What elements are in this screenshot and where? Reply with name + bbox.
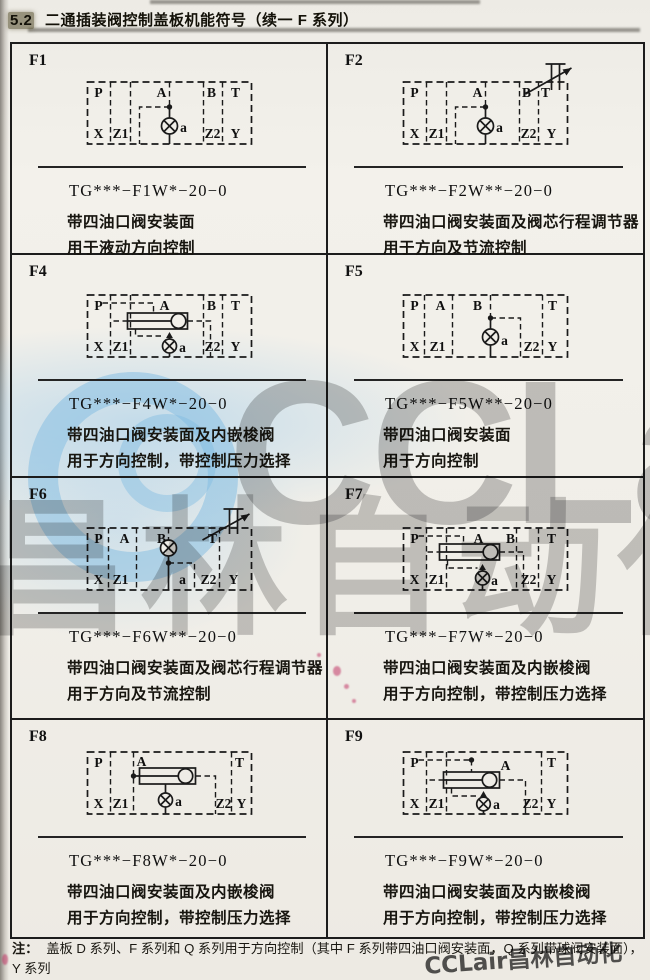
section-number: 5.2 [8,12,34,29]
port-label: T [541,85,550,100]
port-label: Z1 [429,572,445,587]
port-label: X [410,339,420,354]
footnote: 注：盖板 D 系列、F 系列和 Q 系列用于方向控制（其中 F 系列带四油口阀安… [12,939,646,980]
schematic-f9: P A T X Z1 a Z2 Y [328,730,643,830]
port-label: a [501,333,508,348]
model-code: TG***−F1W*−20−0 [69,181,326,201]
description-line1: 带四油口阀安装面及内嵌梭阀 [67,880,326,902]
scan-edge-shadow [0,0,9,980]
port-label: Z2 [200,572,216,587]
port-label: X [93,572,103,587]
port-label: Y [547,572,557,587]
port-label: Y [230,126,240,141]
port-label: T [207,531,216,546]
port-label: Y [547,126,557,141]
port-label: Y [236,796,246,811]
model-code: TG***−F8W*−20−0 [69,851,326,871]
model-code: TG***−F6W**−20−0 [69,627,326,647]
port-label: X [410,796,420,811]
port-label: P [410,531,418,546]
separator-line [354,166,623,168]
description-line2: 用于方向及节流控制 [67,682,326,704]
model-code: TG***−F4W*−20−0 [69,394,326,414]
cell-f2: F2 P A B T [328,44,643,255]
cell-label: F1 [29,52,47,70]
port-label: a [179,340,186,355]
port-label: T [547,755,556,770]
port-label: Z2 [204,126,220,141]
port-label: A [436,298,446,313]
port-label: A [159,298,169,313]
page-title: 5.2 二通插装阀控制盖板机能符号（续一 F 系列） [8,9,359,30]
port-label: B [522,85,531,100]
cell-f8: F8 P A T X [12,720,328,937]
separator-line [354,379,623,381]
model-code: TG***−F9W*−20−0 [385,851,643,871]
description-line2: 用于方向控制，带控制压力选择 [383,906,643,928]
port-label: Z2 [524,339,540,354]
port-label: T [234,755,243,770]
port-label: X [93,339,103,354]
port-label: B [506,531,515,546]
description-line1: 带四油口阀安装面及阀芯行程调节器 [67,656,326,678]
port-label: Z1 [112,339,128,354]
port-label: B [206,85,215,100]
port-label: P [94,531,102,546]
port-label: Z1 [112,796,128,811]
port-label: Z2 [521,126,537,141]
port-label: A [119,531,129,546]
port-label: a [179,572,186,587]
cell-label: F9 [345,728,363,746]
port-label: a [496,120,503,135]
schematic-f7: P A B T X Z1 a Z2 Y [328,506,643,606]
schematic-f4: P A B T X Z1 a Z2 Y [12,273,326,373]
schematic-f6: P A B T X Z1 a Z2 Y [12,506,326,606]
port-label: T [230,298,239,313]
description-line2: 用于方向控制 [383,449,643,471]
separator-line [38,836,306,838]
separator-line [354,836,623,838]
port-label: A [501,758,511,773]
model-code: TG***−F2W**−20−0 [385,181,643,201]
port-label: Y [548,339,558,354]
cell-f1: F1 P A B T X Z1 [12,44,328,255]
port-label: Y [228,572,238,587]
port-label: P [410,85,418,100]
description-line1: 带四油口阀安装面及内嵌梭阀 [383,656,643,678]
port-label: T [547,531,556,546]
separator-line [38,379,306,381]
port-label: Z2 [215,796,231,811]
port-label: B [156,531,165,546]
cell-label: F5 [345,263,363,281]
port-label: B [206,298,215,313]
port-label: B [473,298,482,313]
port-label: a [180,120,187,135]
port-label: A [473,85,483,100]
port-label: Y [230,339,240,354]
separator-line [38,166,306,168]
cell-f9: F9 [328,720,643,937]
port-label: P [410,755,418,770]
port-label: A [136,754,146,769]
model-code: TG***−F5W**−20−0 [385,394,643,414]
cell-label: F2 [345,52,363,70]
port-label: P [94,755,102,770]
title-text: 二通插装阀控制盖板机能符号（续一 F 系列） [45,12,359,29]
port-label: Z1 [429,126,445,141]
port-label: A [156,85,166,100]
port-label: Y [547,796,557,811]
cell-label: F8 [29,728,47,746]
cell-label: F6 [29,486,47,504]
port-label: Z2 [523,796,539,811]
footnote-line1: 盖板 D 系列、F 系列和 Q 系列用于方向控制（其中 F 系列带四油口阀安装面… [12,941,643,976]
port-label: P [94,85,102,100]
description-line1: 带四油口阀安装面及内嵌梭阀 [67,423,326,445]
port-label: Z2 [204,339,220,354]
port-label: X [93,796,103,811]
description-line2: 用于方向控制，带控制压力选择 [67,906,326,928]
separator-line [354,612,623,614]
description-line2: 用于方向控制，带控制压力选择 [383,682,643,704]
description-line1: 带四油口阀安装面及内嵌梭阀 [383,880,643,902]
description-line2: 用于方向控制，带控制压力选择 [67,449,326,471]
port-label: Z1 [112,126,128,141]
port-label: a [491,573,498,588]
cell-f7: F7 P A [328,478,643,720]
port-label: A [474,531,484,546]
port-label: Z1 [430,339,446,354]
port-label: Z1 [429,796,445,811]
cell-label: F4 [29,263,47,281]
description-line1: 带四油口阀安装面 [383,423,643,445]
port-label: X [410,126,420,141]
scan-smudge-top [150,0,480,4]
footnote-label: 注： [12,941,38,956]
port-label: Z1 [112,572,128,587]
scanned-catalog-page: 5.2 二通插装阀控制盖板机能符号（续一 F 系列） F1 P A [0,0,650,980]
description-line1: 带四油口阀安装面 [67,210,326,232]
port-label: Z2 [521,572,537,587]
schematic-f2: P A B T X Z1 a Z2 Y [328,60,643,160]
port-label: a [493,797,500,812]
schematic-f5: P A B T X Z1 a Z2 Y [328,273,643,373]
schematic-f8: P A T X Z1 a Z2 Y [12,730,326,830]
schematic-f1: P A B T X Z1 a Z2 Y [12,60,326,160]
port-label: P [410,298,418,313]
cell-f6: F6 P A B T [12,478,328,720]
port-label: P [94,298,102,313]
port-label: a [175,794,182,809]
separator-line [38,612,306,614]
model-code: TG***−F7W*−20−0 [385,627,643,647]
cell-label: F7 [345,486,363,504]
description-line1: 带四油口阀安装面及阀芯行程调节器 [383,210,643,232]
port-label: X [93,126,103,141]
cell-f4: F4 P A [12,255,328,478]
symbol-table: F1 P A B T X Z1 [10,42,645,939]
port-label: T [230,85,239,100]
cell-f5: F5 P A B T X Z1 [328,255,643,478]
port-label: X [410,572,420,587]
port-label: T [548,298,557,313]
